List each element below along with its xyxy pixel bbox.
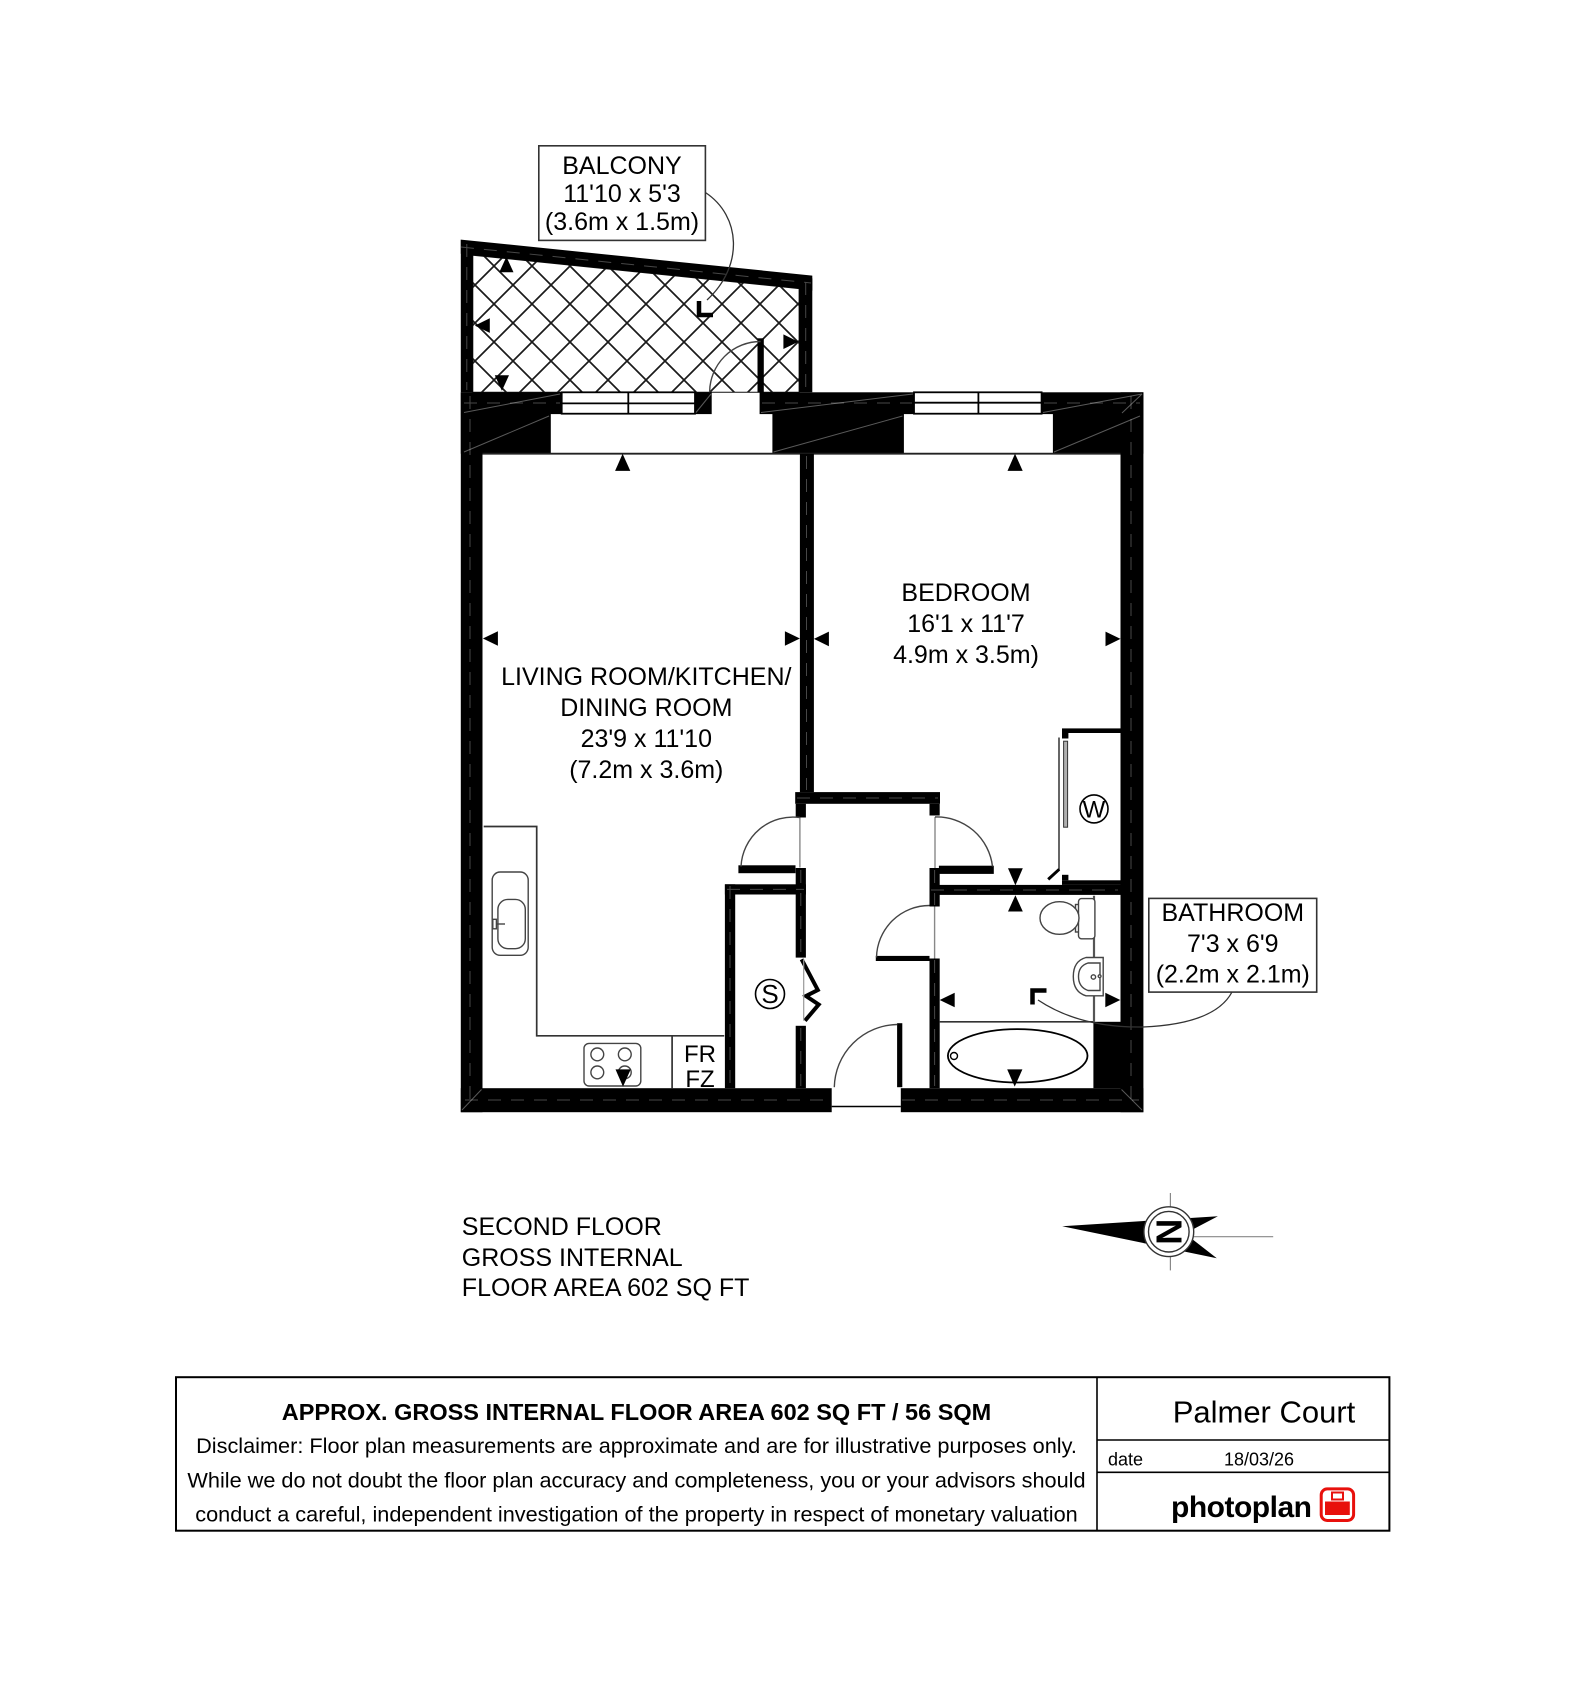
svg-text:S: S [761,979,778,1009]
svg-text:GROSS INTERNAL: GROSS INTERNAL [462,1244,683,1272]
svg-text:16'1 x 11'7: 16'1 x 11'7 [907,610,1025,638]
svg-text:(7.2m x 3.6m): (7.2m x 3.6m) [569,756,723,784]
svg-text:BEDROOM: BEDROOM [901,579,1030,607]
svg-text:While we do not doubt the floo: While we do not doubt the floor plan acc… [187,1468,1085,1493]
svg-text:4.9m x 3.5m): 4.9m x 3.5m) [893,641,1039,669]
svg-text:APPROX. GROSS INTERNAL FLOOR A: APPROX. GROSS INTERNAL FLOOR AREA 602 SQ… [282,1399,991,1425]
svg-text:Palmer Court: Palmer Court [1173,1395,1356,1430]
svg-text:FLOOR AREA 602 SQ FT: FLOOR AREA 602 SQ FT [462,1274,750,1302]
svg-text:Disclaimer: Floor plan measure: Disclaimer: Floor plan measurements are … [196,1433,1077,1458]
svg-text:N: N [1149,1219,1190,1245]
svg-text:date: date [1108,1450,1143,1470]
svg-text:SECOND FLOOR: SECOND FLOOR [462,1213,662,1241]
svg-text:DINING ROOM: DINING ROOM [560,694,732,722]
svg-text:BATHROOM: BATHROOM [1162,899,1305,927]
svg-text:LIVING ROOM/KITCHEN/: LIVING ROOM/KITCHEN/ [501,663,791,691]
svg-text:(3.6m x 1.5m): (3.6m x 1.5m) [545,208,699,236]
svg-text:FZ: FZ [685,1066,714,1093]
svg-text:BALCONY: BALCONY [562,152,682,180]
svg-text:W: W [1083,797,1106,824]
svg-text:7'3 x 6'9: 7'3 x 6'9 [1187,930,1279,958]
svg-text:23'9 x 11'10: 23'9 x 11'10 [581,725,712,753]
svg-text:photoplan: photoplan [1171,1491,1311,1524]
svg-text:conduct a careful, independent: conduct a careful, independent investiga… [195,1502,1078,1527]
svg-text:11'10 x 5'3: 11'10 x 5'3 [563,180,681,208]
svg-text:FR: FR [684,1041,716,1068]
svg-text:(2.2m x 2.1m): (2.2m x 2.1m) [1156,961,1310,989]
svg-text:18/03/26: 18/03/26 [1224,1450,1294,1470]
